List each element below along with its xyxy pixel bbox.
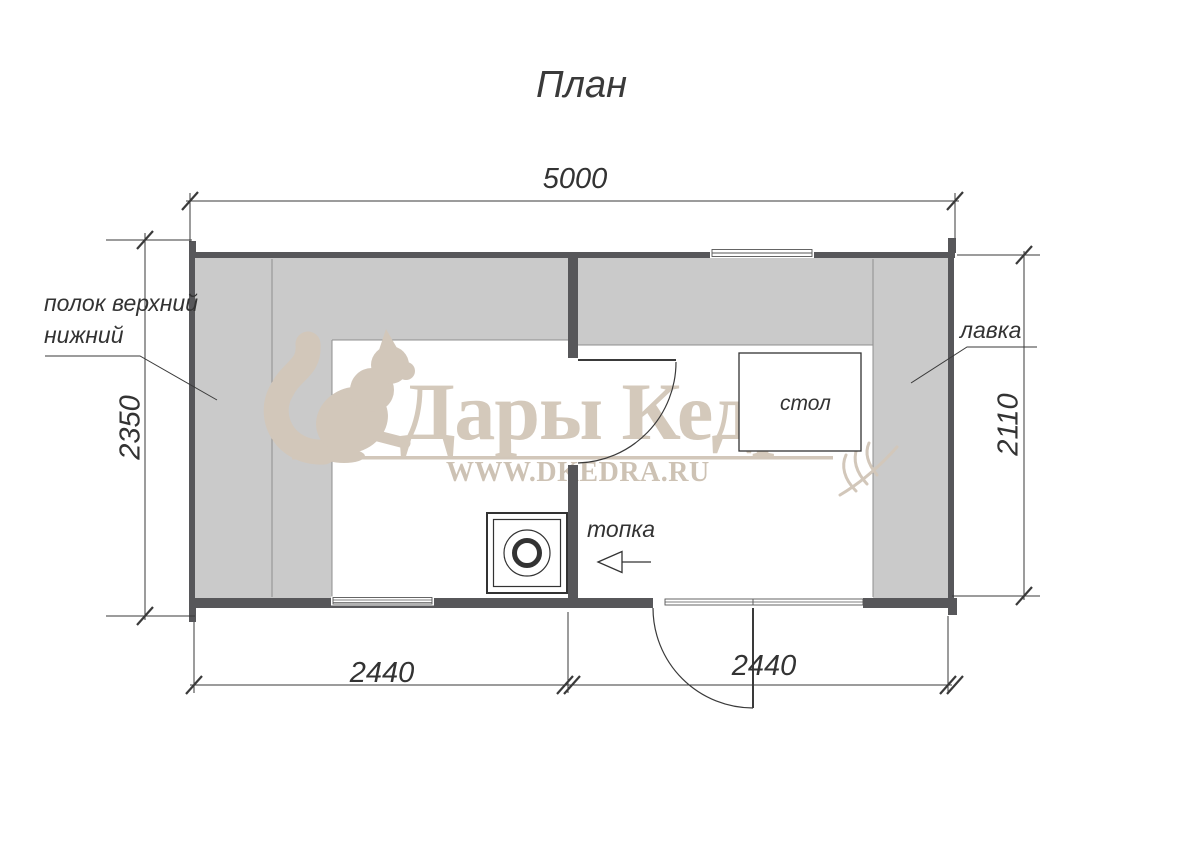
window-bottom-left	[331, 597, 434, 606]
page-title: План	[536, 64, 627, 107]
partition-wall	[568, 258, 578, 598]
corner-post-bottom-left	[189, 607, 196, 622]
window-top	[710, 248, 814, 258]
dimension-bottom	[186, 612, 963, 694]
dimension-top	[182, 192, 963, 242]
corner-post-top-left	[189, 241, 196, 253]
dimension-label-2440-left: 2440	[342, 657, 422, 690]
dimension-label-2440-right: 2440	[724, 650, 804, 683]
firebox-arrow-icon	[598, 552, 651, 573]
firebox-label: топка	[587, 516, 655, 543]
floor-plan-page: Дары Кедра WWW.DKEDRA.RU	[0, 0, 1200, 848]
interior-door	[578, 360, 676, 463]
shelf-label-line2: нижний	[44, 322, 124, 349]
bench-leader-line	[911, 347, 1037, 383]
corner-post-top-right	[948, 238, 956, 253]
dimension-label-2110: 2110	[993, 385, 1026, 465]
shelf-label-line1: полок верхний	[44, 290, 198, 317]
dimension-label-5000: 5000	[535, 163, 615, 196]
dimension-label-2350: 2350	[115, 388, 148, 468]
bench-label: лавка	[960, 317, 1021, 344]
table-label: стол	[780, 392, 831, 416]
entrance-opening	[653, 597, 863, 609]
stove-icon	[487, 513, 567, 593]
corner-post-bottom-right	[948, 607, 957, 615]
